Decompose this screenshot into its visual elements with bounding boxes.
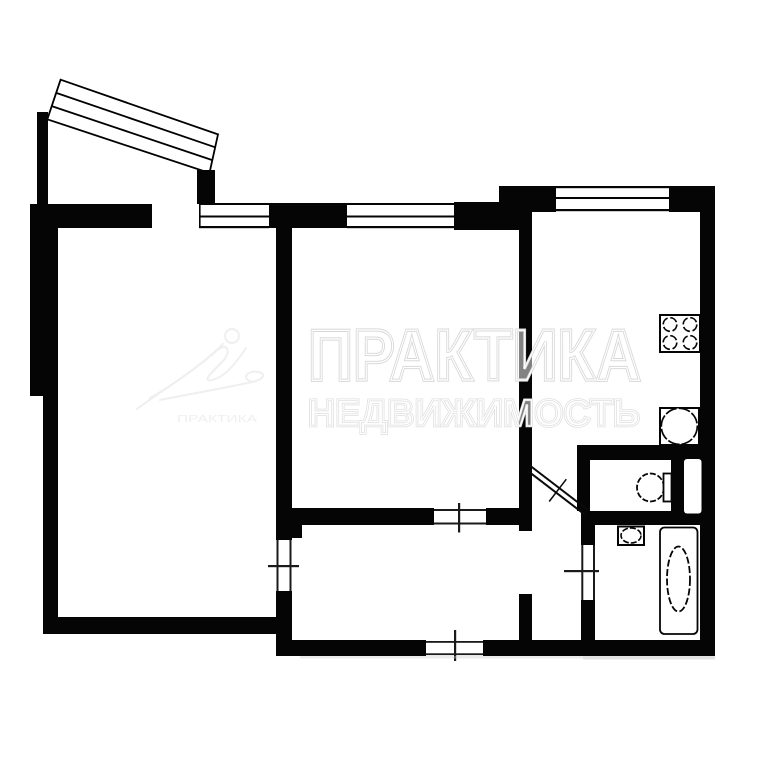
svg-text:ПРАКТИКА: ПРАКТИКА (177, 414, 257, 425)
svg-text:ПРАКТИКА: ПРАКТИКА (308, 316, 641, 396)
svg-text:НЕДВИЖИМОСТЬ: НЕДВИЖИМОСТЬ (308, 393, 640, 435)
